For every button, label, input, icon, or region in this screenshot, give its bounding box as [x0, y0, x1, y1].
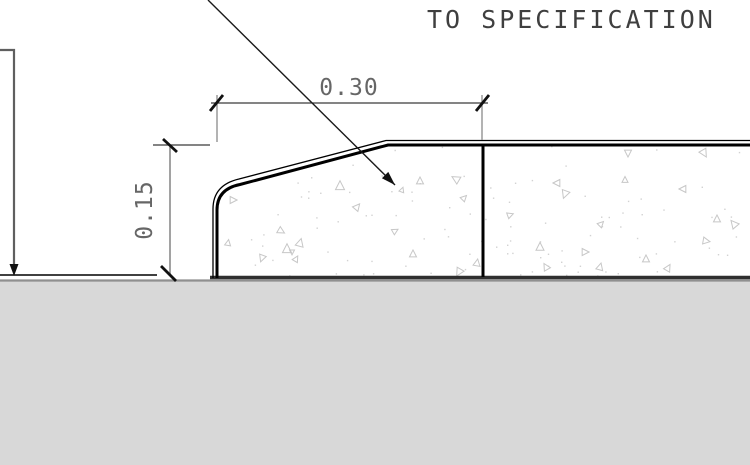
hatch-dot — [580, 266, 581, 267]
dim-height-value: 0.15 — [132, 180, 158, 239]
hatch-triangle — [257, 254, 266, 263]
hatch-dot — [338, 221, 339, 222]
dim-height-tick-bottom — [161, 266, 176, 281]
hatch-dot — [371, 261, 372, 262]
hatch-dot — [605, 271, 606, 272]
hatch-dot — [548, 254, 549, 255]
hatch-triangle — [625, 150, 632, 157]
hatch-dot — [412, 200, 413, 201]
hatch-triangle — [225, 239, 232, 246]
hatch-triangle — [596, 262, 605, 270]
hatch-dot — [485, 219, 486, 220]
hatch-dot — [510, 226, 511, 227]
hatch-dot — [520, 274, 521, 275]
hatch-triangle — [292, 254, 300, 262]
hatch-dot — [493, 198, 494, 199]
hatch-dot — [657, 271, 658, 272]
hatch-dot — [448, 236, 449, 237]
hatch-dot — [622, 212, 623, 213]
hatch-dot — [263, 234, 264, 235]
hatch-dot — [545, 223, 546, 224]
hatch-dot — [470, 213, 471, 214]
hatch-dot — [465, 269, 466, 270]
hatch-dot — [349, 192, 350, 193]
hatch-triangle — [582, 249, 589, 256]
hatch-dot — [532, 271, 533, 272]
hatch-dot — [609, 217, 610, 218]
hatch-dot — [373, 273, 374, 274]
hatch-dot — [289, 162, 290, 163]
hatch-dot — [674, 241, 675, 242]
hatch-dot — [702, 187, 703, 188]
hatch-dot — [620, 226, 621, 227]
hatch-dot — [565, 165, 566, 166]
hatch-dot — [308, 191, 309, 192]
hatch-dot — [711, 217, 712, 218]
hatch-triangle — [336, 181, 345, 190]
hatch-dot — [316, 217, 317, 218]
hatch-dot — [532, 180, 533, 181]
hatch-dot — [255, 265, 256, 266]
specification-note-text: TO SPECIFICATION — [427, 5, 716, 34]
hatch-dot — [396, 215, 397, 216]
hatch-dot — [327, 251, 328, 252]
hatch-dot — [601, 217, 602, 218]
hatch-dot — [509, 202, 510, 203]
hatch-dot — [352, 165, 353, 166]
hatch-dot — [411, 192, 412, 193]
hatch-dot — [251, 239, 252, 240]
hatch-dot — [727, 255, 728, 256]
road-level-leader-line — [0, 50, 14, 271]
hatch-dot — [496, 247, 497, 248]
hatch-dot — [515, 183, 516, 184]
hatch-triangle — [679, 186, 686, 193]
hatch-triangle — [536, 242, 544, 250]
hatch-dot — [272, 260, 273, 261]
hatch-dot — [391, 191, 392, 192]
hatch-dot — [347, 260, 348, 261]
hatch-triangle — [410, 250, 417, 257]
hatch-dot — [561, 262, 562, 263]
hatch-dot — [464, 176, 465, 177]
hatch-dot — [262, 245, 263, 246]
hatch-dot — [637, 238, 638, 239]
hatch-dot — [297, 182, 298, 183]
hatch-triangle — [230, 197, 237, 204]
hatch-dot — [507, 253, 508, 254]
hatch-dot — [709, 248, 710, 249]
hatch-dot — [618, 273, 619, 274]
hatch-dot — [507, 245, 508, 246]
hatch-dot — [656, 149, 657, 150]
hatch-triangle — [699, 148, 710, 159]
hatch-triangle — [703, 237, 711, 245]
hatch-triangle — [507, 211, 515, 219]
hatch-dot — [739, 152, 740, 153]
hatch-triangle — [460, 193, 468, 201]
hatch-triangle — [391, 227, 399, 235]
hatch-dot — [736, 236, 737, 237]
hatch-triangle — [399, 186, 405, 192]
hatch-dot — [639, 257, 640, 258]
hatch-dot — [363, 274, 364, 275]
hatch-dot — [578, 272, 579, 273]
hatch-triangle — [560, 190, 570, 200]
hatch-triangle — [714, 215, 721, 222]
hatch-dot — [510, 240, 511, 241]
hatch-dot — [442, 147, 443, 148]
ground-fill — [0, 280, 750, 465]
hatch-dot — [395, 150, 396, 151]
hatch-dot — [317, 228, 318, 229]
hatch-triangle — [597, 219, 605, 227]
hatch-dot — [277, 214, 278, 215]
hatch-dot — [430, 273, 431, 274]
hatch-dot — [490, 187, 491, 188]
hatch-dot — [718, 254, 719, 255]
hatch-dot — [371, 215, 372, 216]
hatch-dot — [469, 254, 470, 255]
hatch-triangle — [290, 250, 295, 255]
hatch-triangle — [473, 258, 481, 266]
hatch-triangle — [277, 227, 286, 237]
hatch-triangle — [553, 180, 560, 187]
hatch-triangle — [728, 218, 739, 229]
hatch-dot — [663, 209, 664, 210]
hatch-dot — [642, 214, 643, 215]
hatch-triangle — [664, 263, 674, 272]
dim-width-value: 0.30 — [319, 75, 378, 101]
hatch-triangle — [352, 202, 362, 212]
hatch-triangle — [295, 237, 305, 247]
hatch-dot — [311, 177, 312, 178]
hatch-triangle — [417, 177, 424, 184]
hatch-dot — [585, 196, 586, 197]
hatch-dot — [731, 216, 732, 217]
hatch-dot — [641, 198, 642, 199]
hatch-dot — [306, 144, 307, 145]
kerb-section-drawing: 0.30 0.15 TO SPECIFICATION — [0, 0, 750, 465]
hatch-triangle — [643, 255, 650, 262]
hatch-triangle — [541, 262, 551, 271]
hatch-dot — [301, 196, 302, 197]
hatch-dot — [405, 266, 406, 267]
hatch-dot — [590, 235, 591, 236]
hatch-dot — [449, 207, 450, 208]
hatch-dot — [307, 147, 308, 148]
cad-drawing-canvas: 0.30 0.15 TO SPECIFICATION — [0, 0, 750, 465]
hatch-dot — [724, 209, 725, 210]
hatch-dot — [320, 193, 321, 194]
hatch-dot — [308, 198, 309, 199]
hatch-dot — [220, 147, 221, 148]
hatch-dot — [424, 238, 425, 239]
hatch-triangle — [450, 173, 461, 184]
hatch-dot — [366, 215, 367, 216]
hatch-dot — [382, 175, 383, 176]
hatch-dot — [656, 253, 657, 254]
hatch-triangle — [622, 177, 628, 183]
hatch-dot — [444, 229, 445, 230]
hatch-dot — [221, 152, 222, 153]
hatch-dot — [540, 257, 541, 258]
hatch-dot — [561, 250, 562, 251]
hatch-dot — [564, 265, 565, 266]
hatch-dot — [628, 201, 629, 202]
hatch-dot — [512, 253, 513, 254]
hatch-dot — [336, 273, 337, 274]
